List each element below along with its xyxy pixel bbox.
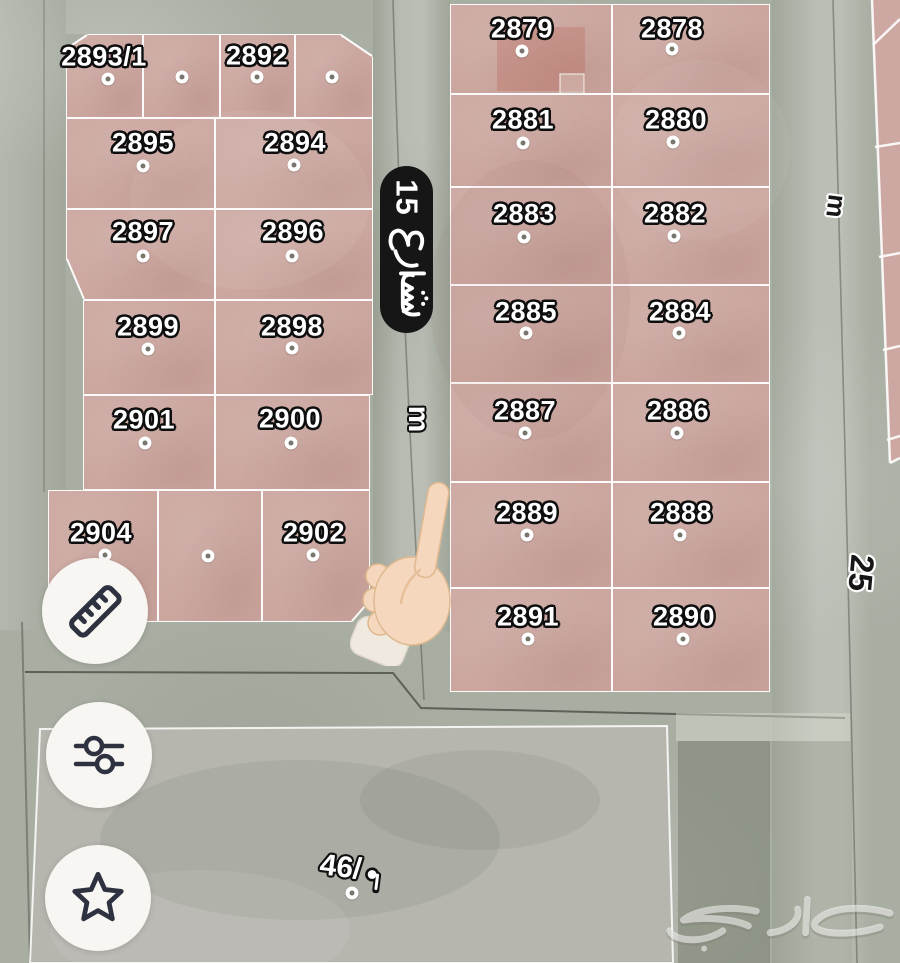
plot-2893/1[interactable] — [66, 34, 143, 118]
plot-unlabeled[interactable] — [143, 34, 220, 118]
street-sign-number: 15 — [389, 179, 425, 215]
plot-2899[interactable] — [83, 300, 215, 395]
filters-button[interactable] — [46, 702, 152, 808]
plot-2888[interactable] — [612, 482, 770, 588]
street-sign-15-content: 15 — [380, 166, 433, 333]
plot-2891[interactable] — [450, 588, 612, 692]
plot-2889[interactable] — [450, 482, 612, 588]
star-icon — [67, 867, 129, 929]
plot-2902[interactable] — [262, 490, 370, 622]
plot-2884[interactable] — [612, 285, 770, 383]
plot-2882[interactable] — [612, 187, 770, 285]
street-sign-15[interactable]: 15 — [380, 166, 433, 333]
ruler-icon — [63, 579, 127, 643]
plot-2881[interactable] — [450, 94, 612, 187]
plot-2898[interactable] — [215, 300, 373, 395]
plot-2895[interactable] — [66, 118, 215, 209]
plot-2892[interactable] — [220, 34, 295, 118]
plot-2880[interactable] — [612, 94, 770, 187]
plot-2894[interactable] — [215, 118, 373, 209]
street-sign-arabic-word — [383, 224, 431, 320]
plot-2883[interactable] — [450, 187, 612, 285]
plot-unlabeled[interactable] — [295, 34, 373, 118]
plot-2879[interactable] — [450, 4, 612, 94]
plot-unlabeled[interactable] — [158, 490, 262, 622]
plot-2885[interactable] — [450, 285, 612, 383]
favorites-button[interactable] — [45, 845, 151, 951]
plot-2886[interactable] — [612, 383, 770, 482]
plot-2897[interactable] — [66, 209, 215, 300]
plots-layer — [0, 0, 900, 963]
sliders-icon — [67, 723, 131, 787]
plot-2890[interactable] — [612, 588, 770, 692]
plot-2887[interactable] — [450, 383, 612, 482]
plot-2900[interactable] — [215, 395, 370, 490]
measure-button[interactable] — [42, 558, 148, 664]
map-screen: m m 25 46/ 2893/128922895289428972896289… — [0, 0, 900, 963]
plot-2878[interactable] — [612, 4, 770, 94]
plot-2896[interactable] — [215, 209, 373, 300]
plot-2901[interactable] — [83, 395, 215, 490]
